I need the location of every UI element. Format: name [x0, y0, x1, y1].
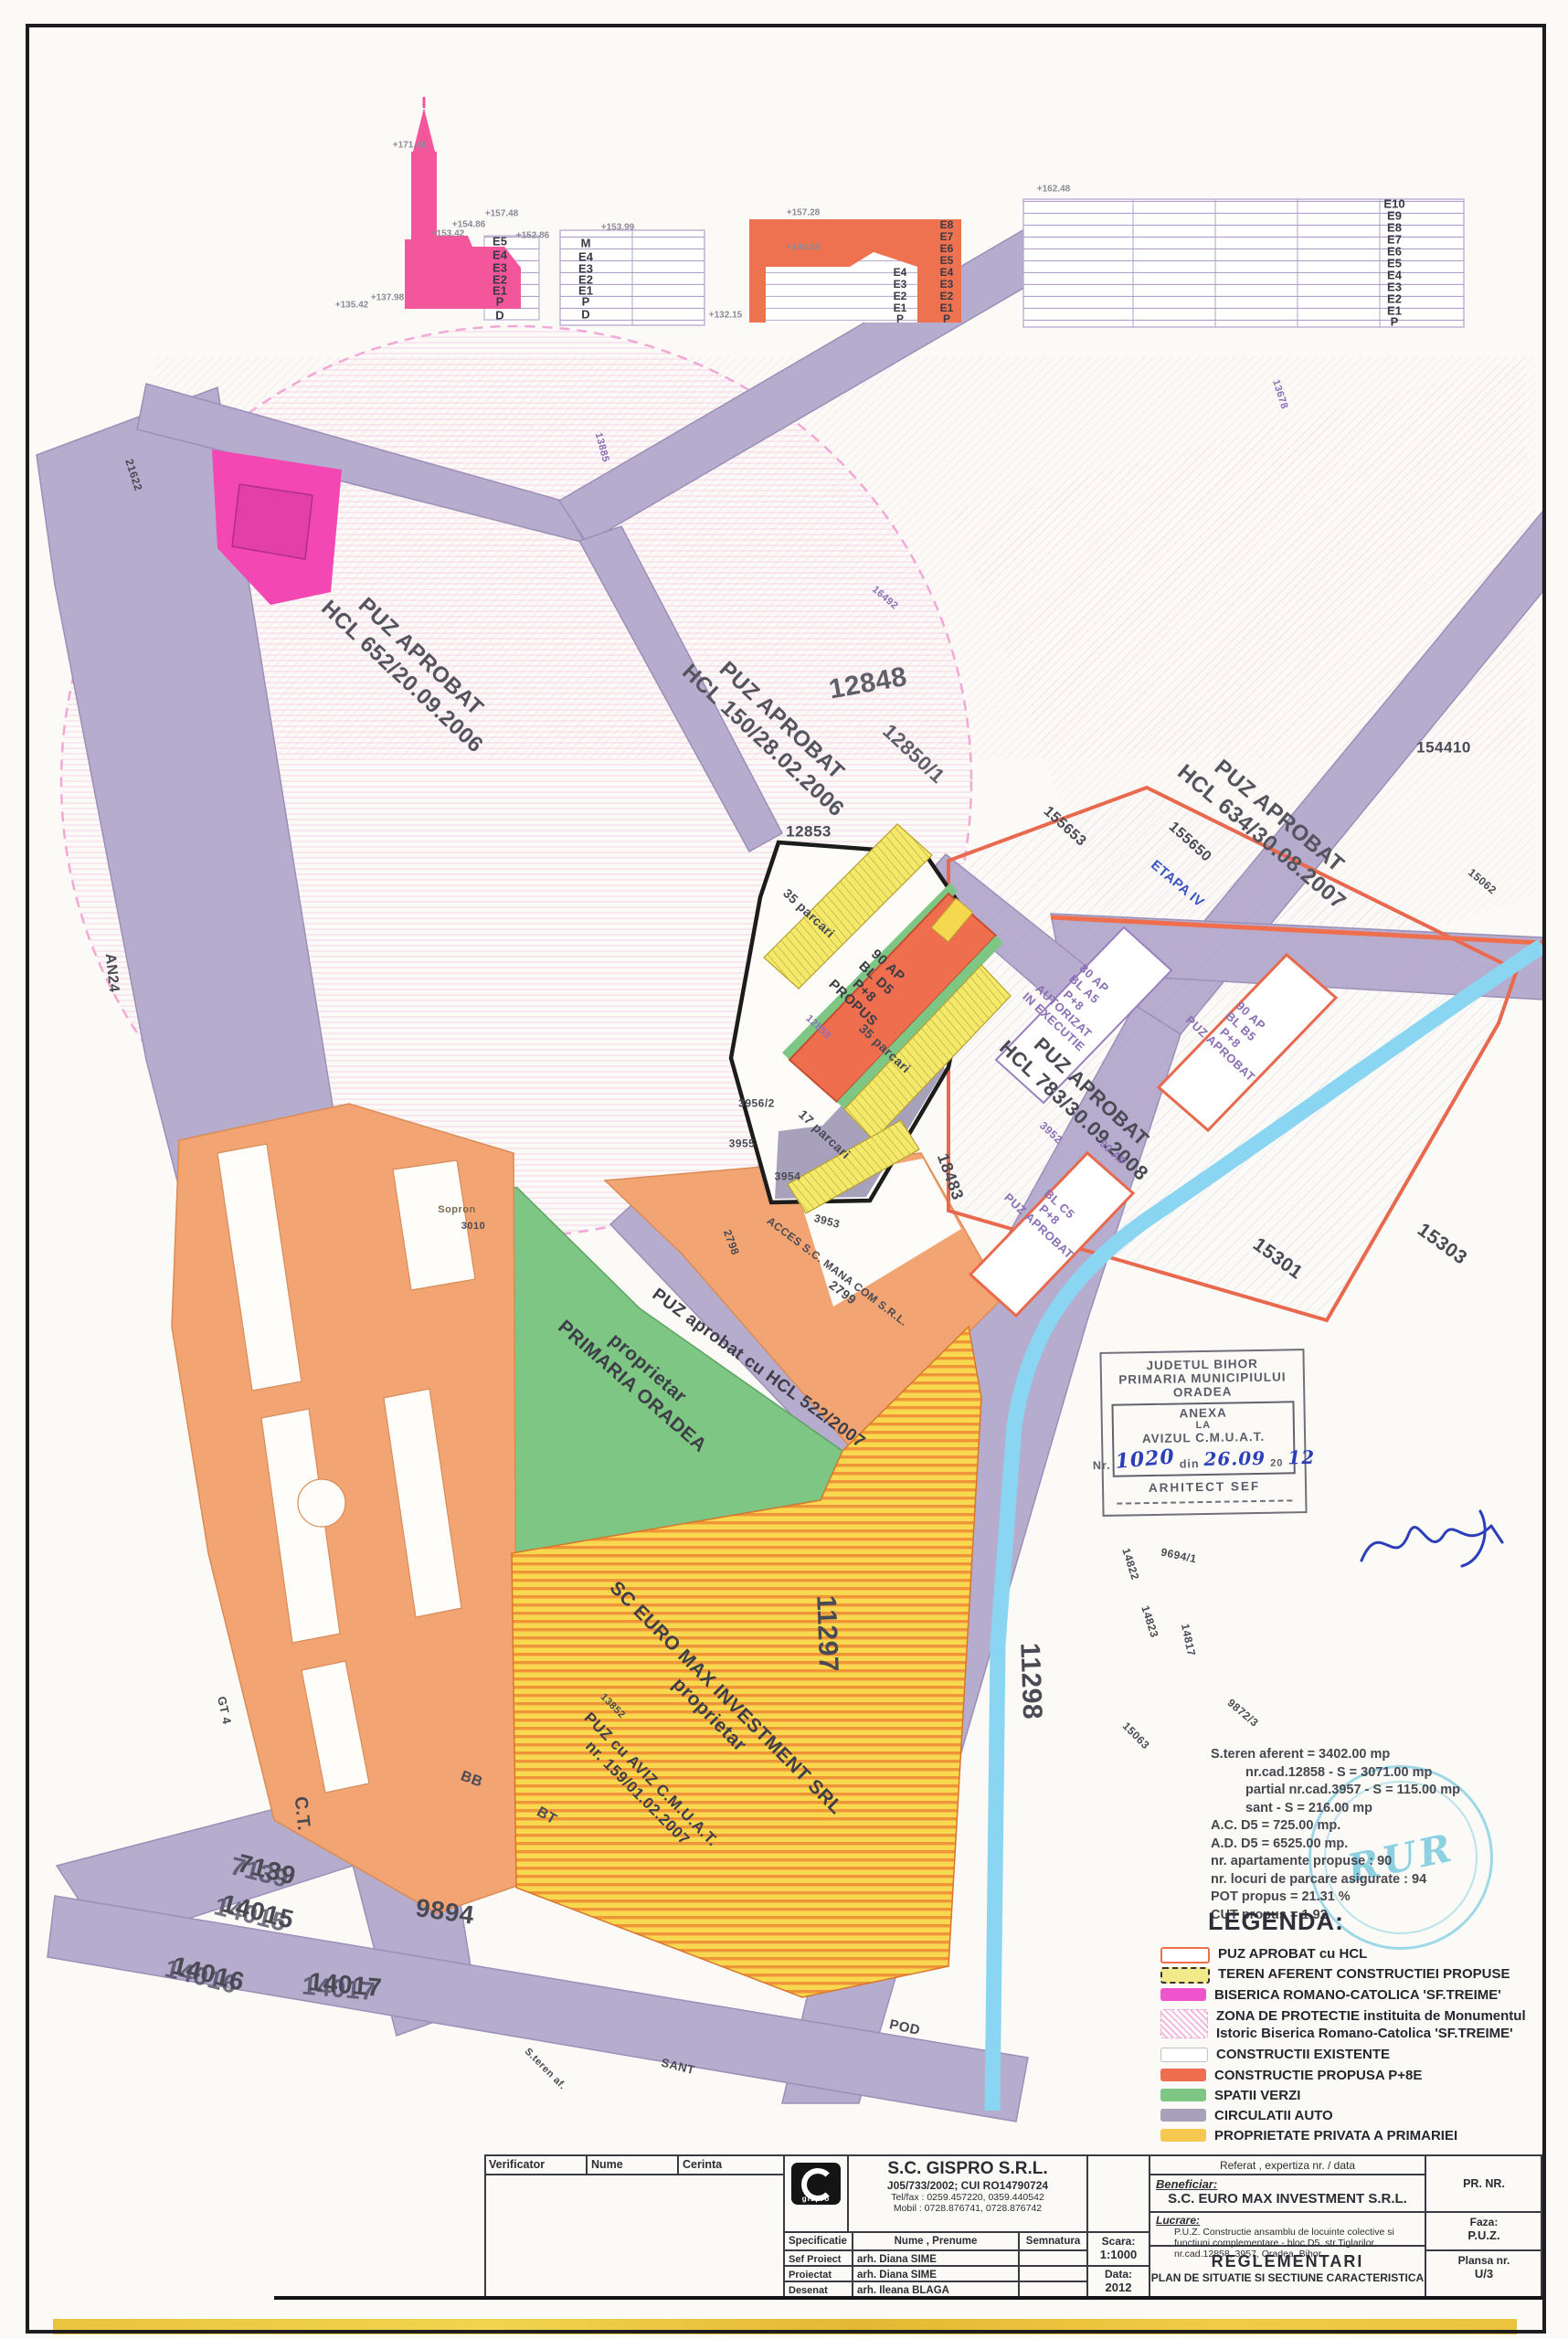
map-label-14017: 14017 [307, 1965, 383, 2004]
faza-label: Faza: [1426, 2216, 1542, 2228]
tb-plansa-nr-cell: Plansa nr. U/3 [1425, 2250, 1542, 2298]
tb-name-header: Nume , Prenume [853, 2232, 1019, 2250]
arhitect-signature [1354, 1506, 1510, 1588]
tb-scara-cell: Scara: 1:1000 [1087, 2232, 1150, 2266]
tb-row-sef-name: arh. Diana SIME [853, 2250, 1019, 2266]
stat-line: nr.cad.12858 - S = 3071.00 mp [1211, 1765, 1567, 1783]
proposed-inner-e2: E2 [894, 290, 907, 302]
proposed-floor-e6: E6 [940, 242, 954, 255]
legend-title: LEGENDA: [1208, 1908, 1344, 1936]
church-floor-p: P [496, 295, 504, 309]
proposed-inner-p: P [896, 312, 904, 325]
data-value: 2012 [1088, 2281, 1149, 2294]
lucrare-label: Lucrare: [1150, 2213, 1425, 2227]
legend-item-auto: CIRCULATII AUTO [1160, 2108, 1333, 2125]
stamp-din-value: 26.09 [1203, 1447, 1266, 1470]
mark-church-top: +171.48 [393, 141, 426, 151]
plansa-nr-value: U/3 [1426, 2267, 1542, 2281]
scara-value: 1:1000 [1088, 2248, 1149, 2261]
tb-verificator-space [484, 2175, 784, 2298]
tb-plansa-title-cell: REGLEMENTARI PLAN DE SITUATIE SI SECTIUN… [1150, 2246, 1425, 2298]
tb-prnr-cell: PR. NR. [1425, 2154, 1542, 2212]
stat-line: sant - S = 216.00 mp [1211, 1801, 1567, 1819]
proposed-floor-e4: E4 [940, 266, 954, 279]
mark-church-base: +137.98 [371, 293, 404, 303]
plansa-title: REGLEMENTARI [1150, 2252, 1425, 2271]
legend-swatch-auto [1160, 2109, 1206, 2122]
map-label-3010: 3010 [461, 1221, 485, 1233]
legend-swatch-teren [1160, 1967, 1210, 1984]
scan-artifact-strip [53, 2319, 1517, 2334]
legend-item-teren: TEREN AFERENT CONSTRUCTIEI PROPUSE [1160, 1966, 1510, 1984]
legend-label: ZONA DE PROTECTIE instituita de Monument… [1216, 2008, 1568, 2043]
tb-nume-header: Nume [587, 2154, 678, 2175]
legend-swatch-existente [1160, 2048, 1208, 2062]
map-label-ct: C.T. [289, 1795, 315, 1832]
map-label-154410: 154410 [1416, 737, 1471, 757]
tb-logo-cell [784, 2154, 848, 2232]
proposed-floor-e7: E7 [940, 230, 954, 243]
mark-existing-base: +132.15 [709, 311, 742, 321]
proposed-floor-p: P [943, 312, 950, 325]
titleblock-bottom-rule [274, 2296, 1542, 2300]
stat-line: partial nr.cad.3957 - S = 115.00 mp [1211, 1783, 1567, 1801]
stamp-nr-label: Nr. [1093, 1459, 1111, 1472]
tall-floor-p: P [1391, 315, 1399, 329]
tb-beneficiar-cell: Beneficiar: S.C. EURO MAX INVESTMENT S.R… [1150, 2175, 1425, 2212]
tb-data-cell: Data: 2012 [1087, 2266, 1150, 2298]
mark-proposed-top: +157.28 [787, 208, 820, 218]
legend-swatch-privata [1160, 2129, 1206, 2142]
stamp-din-label: din [1180, 1457, 1200, 1470]
company-mobil: Mobil : 0728.876741, 0728.876742 [849, 2203, 1086, 2214]
mark-church-roof: +157.48 [485, 209, 518, 219]
stamp-year-prefix: 20 [1270, 1457, 1283, 1468]
existing-floor-p: P [582, 295, 590, 309]
church-floor-d: D [495, 309, 503, 323]
legend-swatch-verzi [1160, 2089, 1206, 2101]
legend-label: PUZ APROBAT cu HCL [1218, 1946, 1367, 1963]
tb-referat-cell: Referat , expertiza nr. / data [1150, 2154, 1425, 2175]
existing-floor-m: M [581, 237, 591, 250]
plan-sheet: 12848 PUZ APROBAT HCL 652/20.09.2006 PUZ… [0, 0, 1568, 2339]
legend-item-biserica: BISERICA ROMANO-CATOLICA 'SF.TREIME' [1160, 1987, 1501, 2005]
beneficiar-label: Beneficiar: [1150, 2175, 1425, 2191]
beneficiar-value: S.C. EURO MAX INVESTMENT S.R.L. [1150, 2191, 1425, 2207]
company-telfax: Tel/fax : 0259.457220, 0359.440542 [849, 2192, 1086, 2203]
legend-item-verzi: SPATII VERZI [1160, 2088, 1300, 2105]
tb-sign-header: Semnatura [1019, 2232, 1087, 2250]
proposed-inner-e3: E3 [894, 278, 907, 291]
anexa-cmuat-stamp: JUDETUL BIHOR PRIMARIA MUNICIPIULUI ORAD… [1099, 1349, 1307, 1517]
map-label-sopron: Sopron [438, 1204, 476, 1217]
elevation-proposed-p8 [749, 219, 961, 323]
company-reg: J05/733/2002; CUI RO14790724 [849, 2179, 1086, 2192]
tb-row-proiectat-name: arh. Diana SIME [853, 2266, 1019, 2281]
scara-label: Scara: [1088, 2235, 1149, 2248]
tb-cerinta: Cerinta [678, 2154, 784, 2175]
legend-item-puz-hcl: PUZ APROBAT cu HCL [1160, 1946, 1367, 1963]
tb-row-sef-sign [1019, 2250, 1087, 2266]
proposed-floor-e2: E2 [940, 290, 954, 302]
church-floor-e4: E4 [493, 249, 507, 262]
proposed-floor-e5: E5 [940, 254, 954, 267]
map-label-12853: 12853 [786, 821, 832, 841]
mark-church-m2: +153.42 [431, 229, 464, 239]
proposed-floor-e3: E3 [940, 278, 954, 291]
existing-floor-d: D [581, 308, 589, 322]
mark-proposed-inner: +148.65 [787, 243, 820, 253]
company-name: S.C. GISPRO S.R.L. [849, 2159, 1086, 2179]
legend-item-zona-protectie: ZONA DE PROTECTIE instituita de Monument… [1160, 2008, 1568, 2043]
stat-line: POT propus = 21.31 % [1211, 1889, 1567, 1908]
legend-swatch-puz-hcl [1160, 1947, 1210, 1963]
stamp-arhitect-sef: ARHITECT SEF [1104, 1478, 1305, 1496]
legend-label: CIRCULATII AUTO [1214, 2108, 1333, 2125]
legend-label: CONSTRUCTII EXISTENTE [1216, 2047, 1390, 2064]
map-label-3956: 3956/2 [738, 1097, 775, 1111]
tb-spec-header: Specificatie [784, 2232, 853, 2250]
mark-tall-top: +162.48 [1037, 185, 1070, 195]
legend-swatch-biserica [1160, 1988, 1206, 2001]
mark-church-ground: +135.42 [335, 301, 368, 311]
church-floor-e5: E5 [493, 235, 507, 249]
map-label-11298: 11298 [1012, 1642, 1049, 1720]
legend-label: TEREN AFERENT CONSTRUCTIEI PROPUSE [1218, 1966, 1510, 1984]
stat-line: nr. apartamente propuse : 90 [1211, 1854, 1567, 1872]
tb-row-sef-spec: Sef Proiect [784, 2250, 853, 2266]
legend-label: BISERICA ROMANO-CATOLICA 'SF.TREIME' [1214, 1987, 1501, 2005]
map-label-3954: 3954 [775, 1170, 801, 1184]
stat-line: nr. locuri de parcare asigurate : 94 [1211, 1872, 1567, 1890]
legend-label: SPATII VERZI [1214, 2088, 1300, 2105]
legend-label: CONSTRUCTIE PROPUSA P+8E [1214, 2068, 1422, 2085]
legend-label: PROPRIETATE PRIVATA A PRIMARIEI [1214, 2128, 1457, 2145]
proposed-inner-e4: E4 [894, 266, 907, 279]
tb-row-proiectat-spec: Proiectat [784, 2266, 853, 2281]
legend-item-privata: PROPRIETATE PRIVATA A PRIMARIEI [1160, 2128, 1457, 2145]
plansa-nr-label: Plansa nr. [1426, 2254, 1542, 2267]
legend-item-existente: CONSTRUCTII EXISTENTE [1160, 2047, 1390, 2064]
stamp-year-value: 12 [1287, 1446, 1315, 1469]
legend-swatch-propusa [1160, 2069, 1206, 2081]
tb-verificator: Verificator [484, 2154, 587, 2175]
faza-value: P.U.Z. [1426, 2228, 1542, 2242]
gispro-logo [791, 2163, 841, 2205]
mark-existing-top: +153.99 [601, 223, 634, 233]
stat-line: A.D. D5 = 6525.00 mp. [1211, 1836, 1567, 1855]
map-label-3955: 3955 [729, 1138, 756, 1151]
tb-company-cell: S.C. GISPRO S.R.L. J05/733/2002; CUI RO1… [848, 2154, 1087, 2232]
stat-line: S.teren aferent = 3402.00 mp [1211, 1747, 1567, 1765]
mark-church-m3: +152.86 [516, 231, 549, 241]
elevation-church [405, 97, 539, 320]
stamp-nr-value: 1020 [1114, 1445, 1175, 1474]
stamp-inner-box: ANEXA LA AVIZUL C.M.U.A.T. Nr. 1020 din … [1111, 1401, 1295, 1476]
stamp-avizul: AVIZUL C.M.U.A.T. [1114, 1429, 1293, 1445]
legend-swatch-zona [1160, 2009, 1208, 2038]
data-label: Data: [1088, 2268, 1149, 2281]
tb-row-proiectat-sign [1019, 2266, 1087, 2281]
plansa-subtitle: PLAN DE SITUATIE SI SECTIUNE CARACTERIST… [1150, 2271, 1425, 2284]
tb-faza-cell: Faza: P.U.Z. [1425, 2212, 1542, 2250]
site-statistics: S.teren aferent = 3402.00 mp nr.cad.1285… [1211, 1747, 1567, 1925]
legend-item-propusa: CONSTRUCTIE PROPUSA P+8E [1160, 2068, 1422, 2085]
map-label-11297: 11297 [809, 1594, 845, 1673]
proposed-floor-e8: E8 [940, 218, 954, 231]
title-block: Verificator Nume Cerinta S.C. GISPRO S.R… [484, 2154, 1542, 2298]
stat-line: A.C. D5 = 725.00 mp. [1211, 1818, 1567, 1836]
tb-lucrare-cell: Lucrare: P.U.Z. Constructie ansamblu de … [1150, 2212, 1425, 2246]
